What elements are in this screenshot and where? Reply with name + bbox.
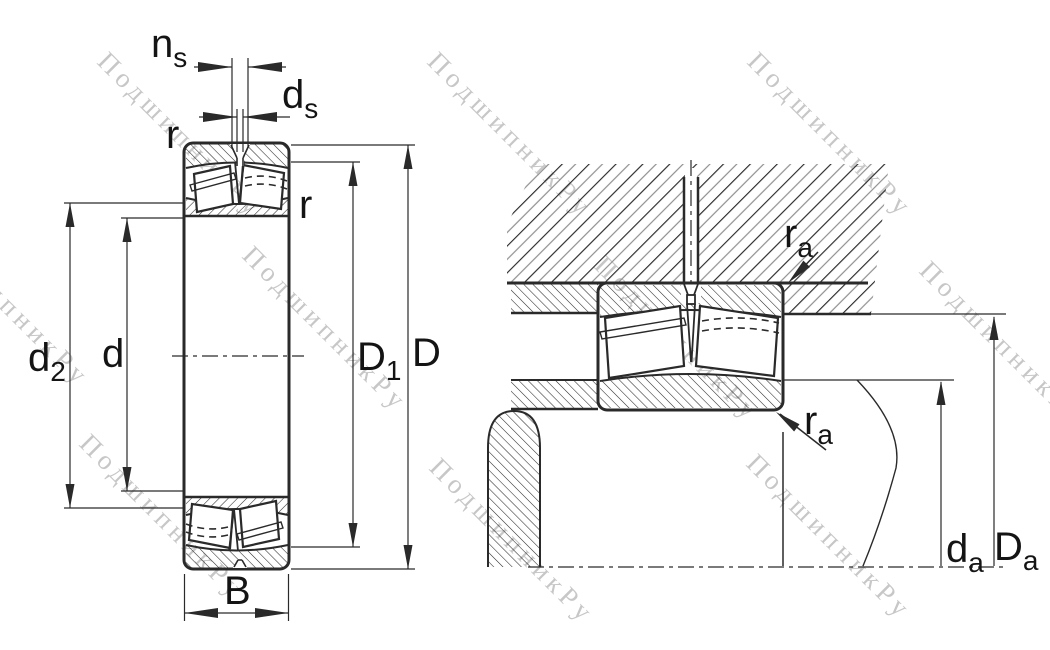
dim-d2 — [66, 203, 75, 508]
label-r-top: r — [166, 113, 179, 157]
shaft-section-blob-hatching — [488, 411, 540, 567]
shaft-shoulder-hatching — [511, 380, 598, 409]
label-ds: ds — [282, 73, 318, 124]
label-da: da — [946, 527, 984, 578]
dim-ns — [194, 62, 286, 72]
label-ns: ns — [151, 22, 187, 73]
label-B: B — [224, 569, 251, 613]
technical-drawing-canvas: ns ds r r d2 d D1 D B — [0, 0, 1050, 650]
label-Da: Da — [994, 525, 1039, 576]
inner-ring-hatching — [600, 374, 781, 408]
left-view-bearing-cross-section: ns ds r r d2 d D1 D B — [28, 22, 441, 621]
housing-cover-hatching — [511, 283, 598, 313]
label-D: D — [412, 331, 441, 375]
bearing-technical-drawing-page: ПодшипникРу ПодшипникРу ПодшипникРу Подш… — [0, 0, 1050, 650]
dim-ds — [199, 112, 290, 122]
label-r-right: r — [299, 183, 312, 227]
label-d2: d2 — [28, 336, 66, 387]
dim-da — [937, 381, 946, 566]
label-D1: D1 — [357, 335, 401, 386]
label-d: d — [102, 332, 124, 376]
right-view-mounted-bearing: ra ra da Da — [488, 160, 1039, 578]
label-ra-lower: ra — [804, 399, 833, 450]
shaft-break-curve — [857, 380, 897, 566]
